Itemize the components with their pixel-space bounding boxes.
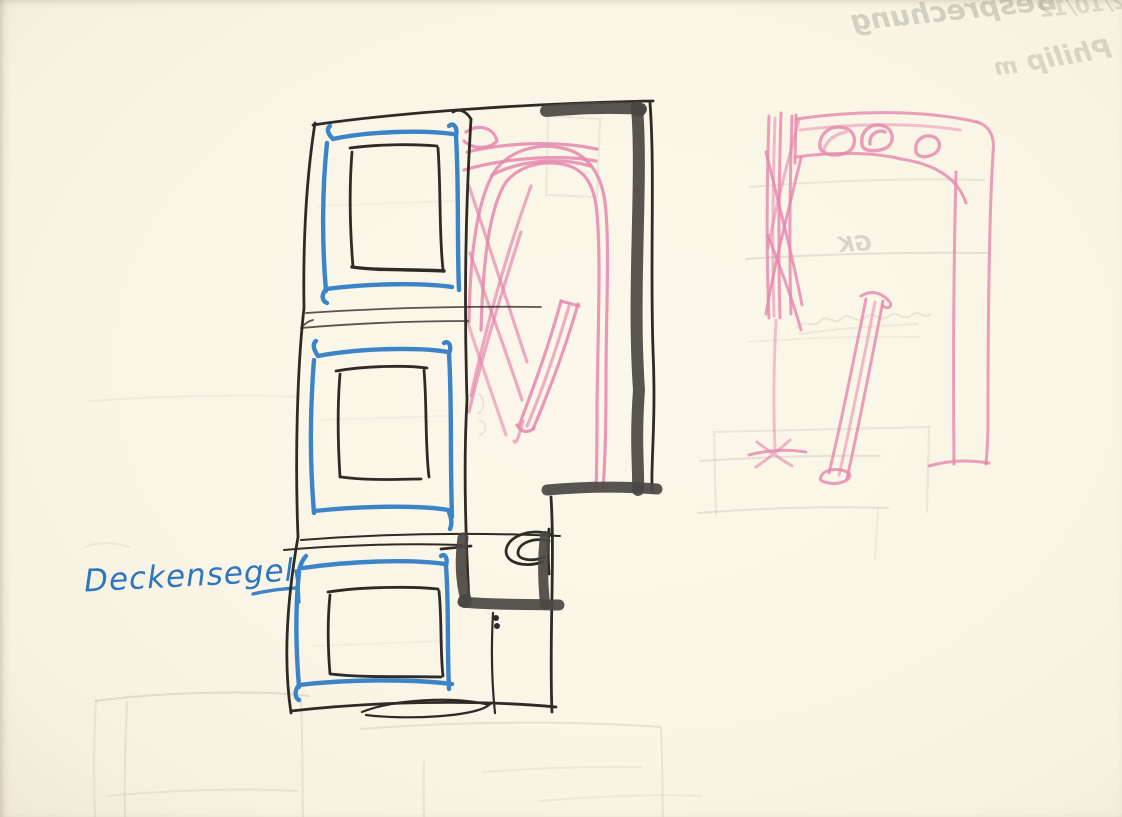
downlight-blob-3 (916, 136, 940, 157)
thick-marker-hook (461, 536, 559, 605)
marker-blob (458, 594, 472, 608)
bleedthrough-mit: m (993, 53, 1019, 81)
downlight-blob-1 (820, 127, 855, 155)
inner-rect-2 (336, 366, 429, 479)
blue-frame-2 (311, 341, 452, 529)
inner-rect-1 (350, 145, 444, 271)
bleedthrough-gk: GK (837, 231, 872, 257)
downlight-blob-2 (862, 125, 892, 151)
thick-marker-wall (458, 103, 657, 608)
blue-frame-3 (296, 555, 452, 700)
blue-panel-frames (253, 125, 459, 700)
faint-pencil-bleedthrough (85, 116, 988, 817)
sketchbook-page: Deckensegel Besprechung 2/10/12 m Philip… (0, 0, 1122, 817)
ink-dot (495, 624, 498, 627)
sketch-canvas (0, 0, 1122, 817)
inner-rect-3 (328, 587, 443, 677)
l-shaped-wall (929, 122, 993, 466)
hatched-column (749, 113, 806, 467)
marker-blob (632, 103, 646, 117)
ink-dot (494, 616, 497, 619)
